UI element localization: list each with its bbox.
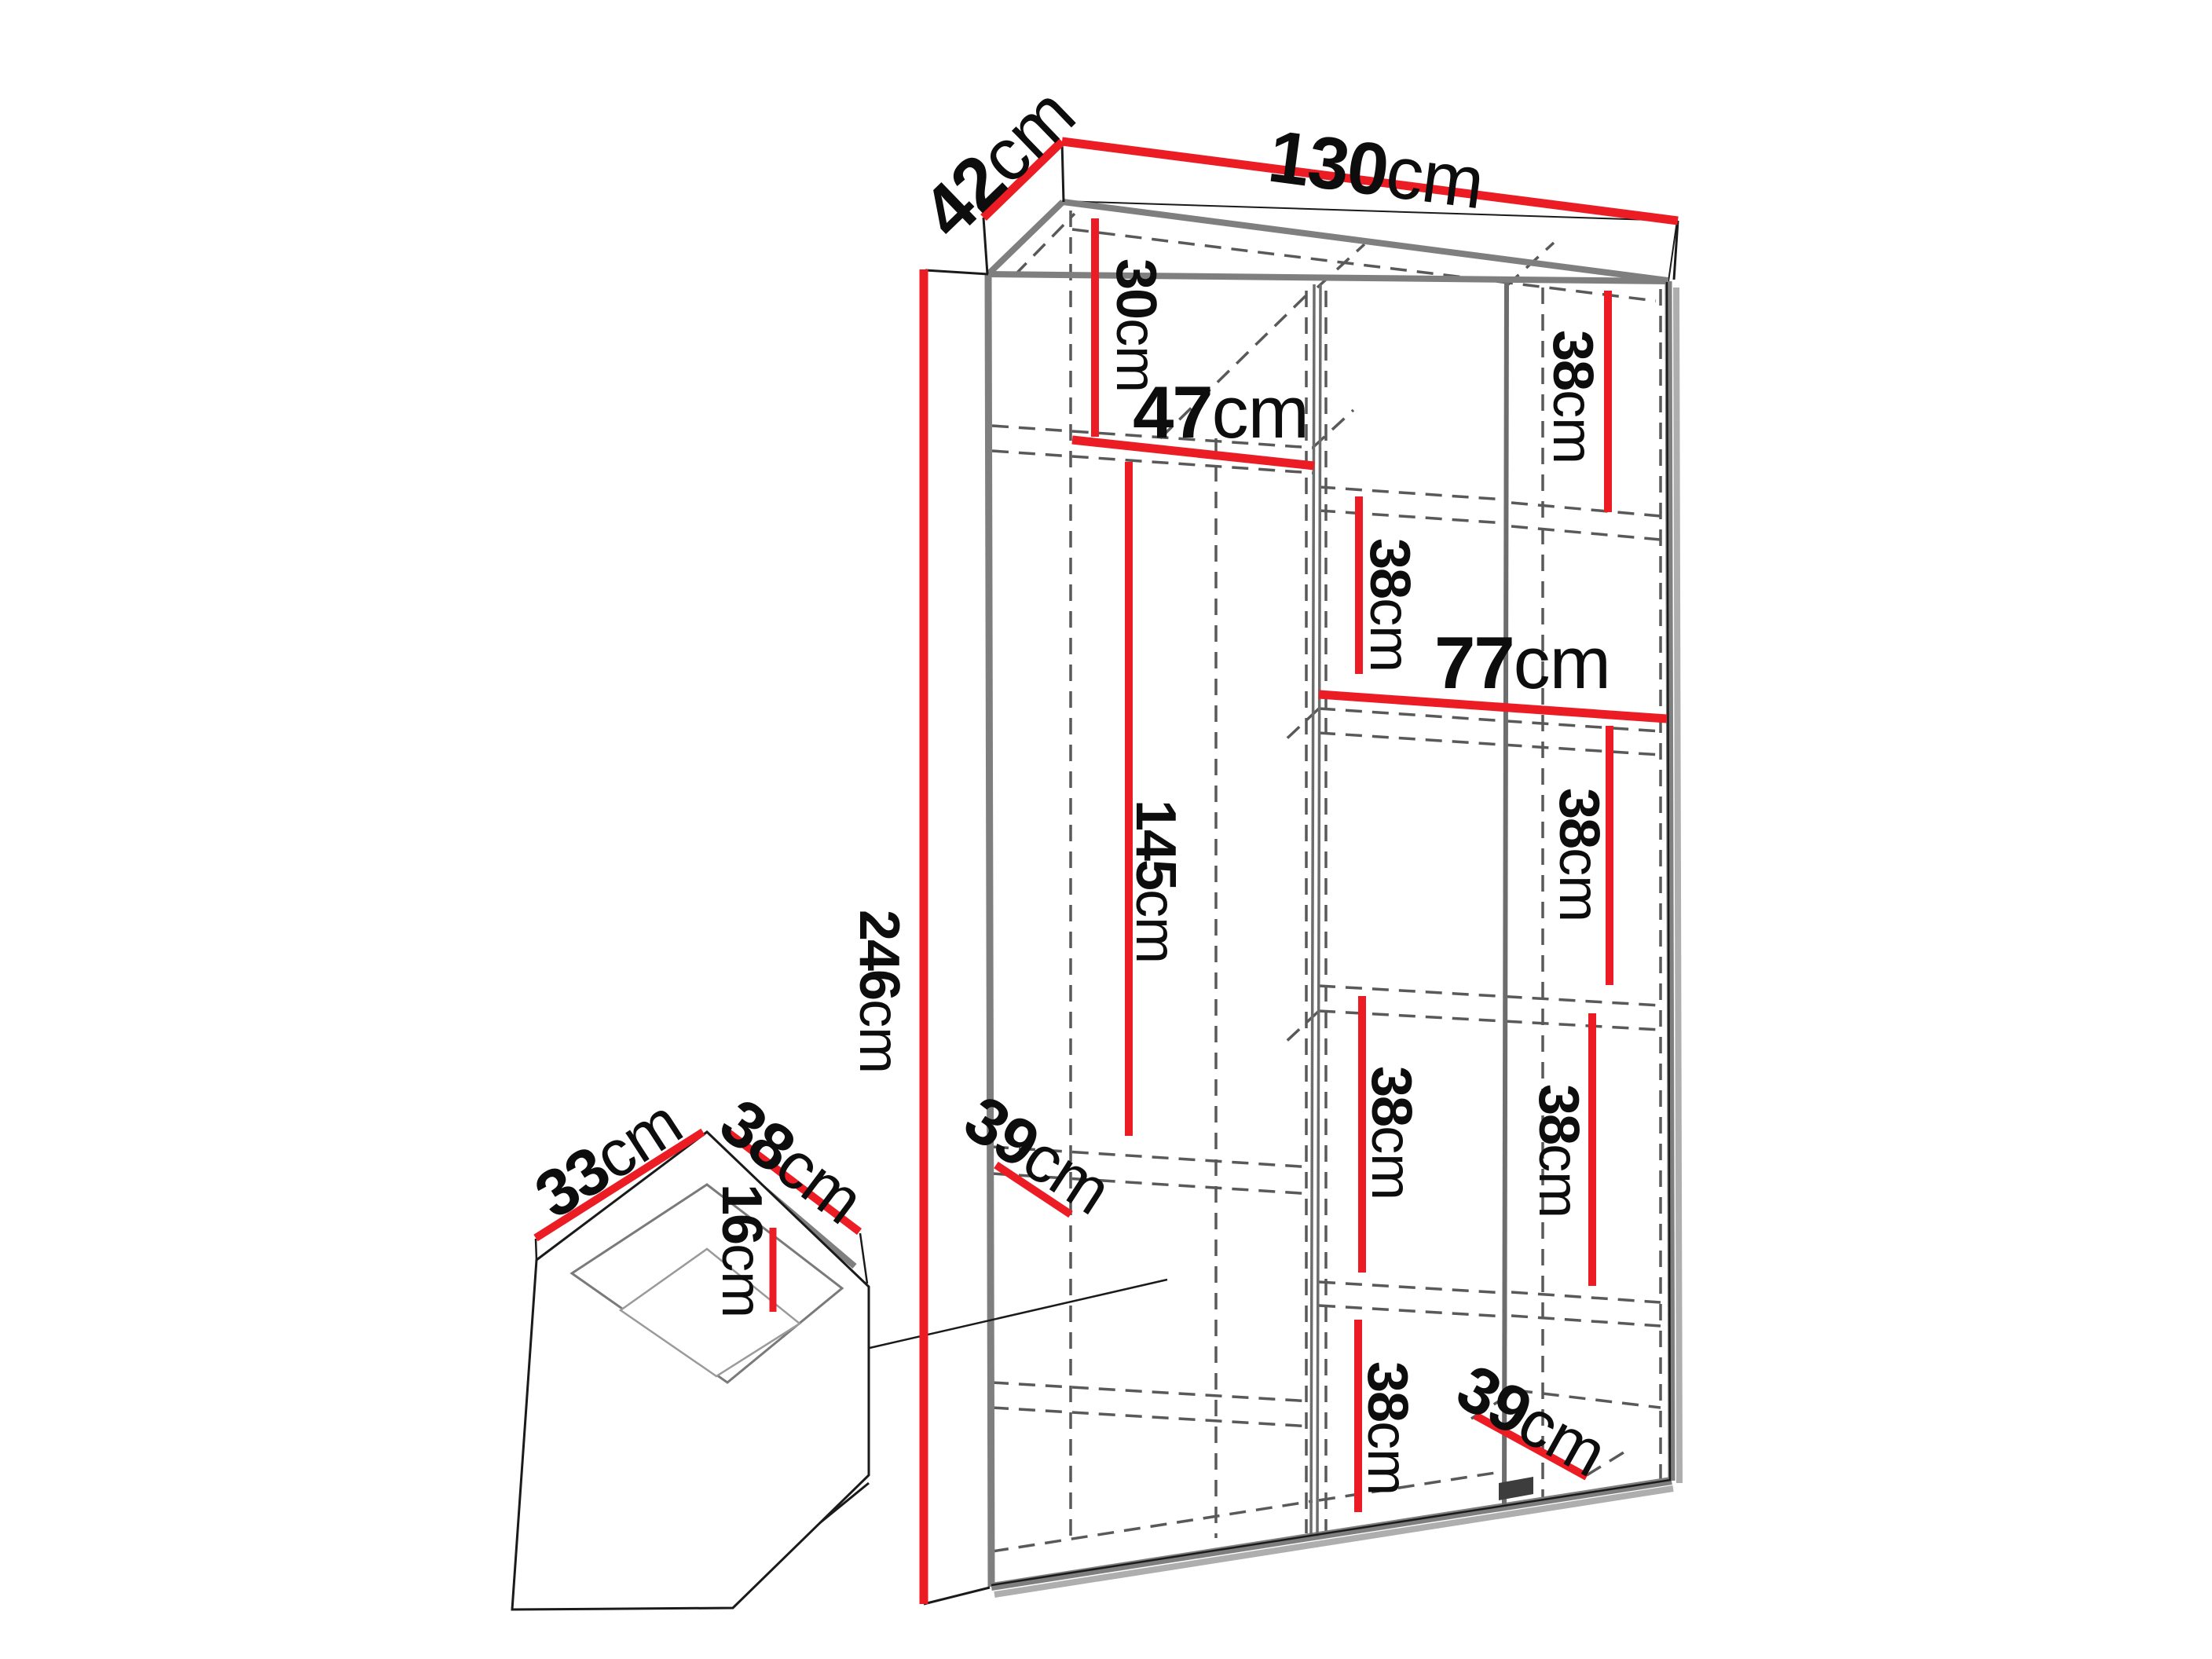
right-edge-shadow: [1676, 287, 1679, 1483]
left-front-edge: [988, 274, 991, 1587]
dim-label-38-right-2: 38cm: [1547, 788, 1610, 921]
tick-246-bottom: [924, 1588, 990, 1604]
page: wardrobe-dimension-diagram 42cm130cm30cm…: [0, 0, 2212, 1659]
dim-label-38-mid-1: 38cm: [1358, 538, 1421, 672]
dim-label-38-mid-3: 38cm: [1356, 1361, 1419, 1495]
dim-label-38-mid-2: 38cm: [1360, 1066, 1423, 1199]
divider2-line: [1504, 283, 1507, 1507]
wardrobe-dimension-diagram: wardrobe-dimension-diagram 42cm130cm30cm…: [0, 0, 2212, 1659]
drawer-tick-38: [860, 1233, 867, 1284]
dim-label-38-right-1: 38cm: [1541, 330, 1604, 463]
wardrobe-front-face: [988, 274, 1672, 1587]
dim-label-38-right-3: 38cm: [1527, 1084, 1590, 1218]
tick-246-top: [925, 270, 988, 274]
dim-label-height-246: 246cm: [848, 910, 910, 1073]
dim-label-145: 145cm: [1124, 800, 1187, 963]
dim-label-drawer-16: 16cm: [710, 1184, 773, 1317]
dim-label-77: 77cm: [1434, 621, 1610, 704]
dim-label-47: 47cm: [1133, 371, 1309, 453]
drawer-tick-33: [536, 1239, 537, 1260]
dim-label-width-130: 130cm: [1264, 114, 1489, 224]
